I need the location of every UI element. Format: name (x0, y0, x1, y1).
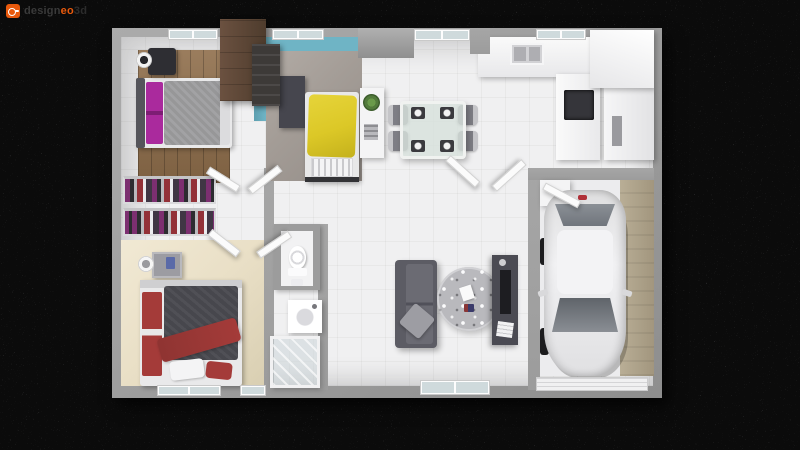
sink-basin-left (514, 47, 526, 61)
rug-decor-items (464, 304, 474, 312)
brand-logo-text: designeo3d (24, 5, 87, 17)
closet-rail-top (123, 176, 216, 204)
window-kitchen (536, 29, 586, 40)
bed2-footboard-slats (311, 158, 353, 177)
logo-word-eo: eo (61, 5, 74, 17)
window-bedroom1 (168, 29, 218, 40)
wall-garage-left (528, 168, 540, 390)
toilet-bowl (289, 246, 306, 269)
car-badge (578, 195, 587, 200)
shower (270, 336, 320, 388)
toilet-brush (291, 279, 303, 286)
window-bedroom2 (272, 29, 324, 40)
toilet-tank (288, 268, 307, 276)
lamp3 (138, 256, 154, 272)
bed1-headboard (136, 78, 145, 148)
wall-garage-top (528, 168, 654, 180)
kitchen-sink (510, 43, 544, 65)
nightstand1 (148, 48, 176, 75)
tall-cabinet-corner (590, 30, 654, 88)
car-windshield (552, 298, 618, 332)
dresser-bedroom2 (279, 76, 305, 128)
bed2-frame-end (305, 177, 359, 182)
patio-sliding-door (420, 380, 490, 395)
bed1-purple-bench (146, 82, 163, 144)
logo-word-3d: 3d (74, 5, 87, 17)
window-bedroom3 (157, 385, 221, 396)
garage-roller-door (536, 377, 648, 391)
nightstand3-item (166, 257, 175, 269)
vanity-faucet (312, 304, 317, 309)
dining-table (400, 101, 466, 159)
floor-plan (112, 28, 662, 398)
sideboard-books (364, 124, 378, 140)
wall-entry-block (358, 28, 414, 58)
wall-kitchen-block (470, 28, 490, 54)
closet-rail-bottom (123, 208, 216, 236)
lamp1 (136, 52, 152, 68)
logo-word-design: design (24, 5, 61, 17)
tv-magazines (496, 321, 514, 338)
bed1-duvet (164, 81, 226, 145)
car-roof (557, 230, 613, 294)
window-bathroom (240, 385, 266, 396)
tv-knob (499, 259, 506, 266)
brand-logo: designeo3d (6, 4, 87, 18)
cooktop (564, 90, 594, 120)
bed3-red-bench (142, 292, 162, 376)
place-setting-1 (411, 107, 425, 119)
sink-basin-right (529, 47, 541, 61)
place-setting-4 (440, 140, 454, 152)
place-setting-2 (440, 107, 454, 119)
dresser-dark-bedroom1 (252, 44, 280, 106)
entry-glazed-door (414, 29, 470, 41)
render-canvas: designeo3d (0, 0, 800, 450)
bed3-pillow-red (205, 361, 233, 381)
car-rear-window (555, 204, 615, 226)
designeo-mark-icon (6, 4, 20, 18)
cabinet-vent (612, 116, 622, 146)
bed2-yellow-duvet (307, 94, 357, 158)
place-setting-3 (411, 140, 425, 152)
tv-screen (500, 270, 511, 314)
plant (363, 94, 380, 111)
